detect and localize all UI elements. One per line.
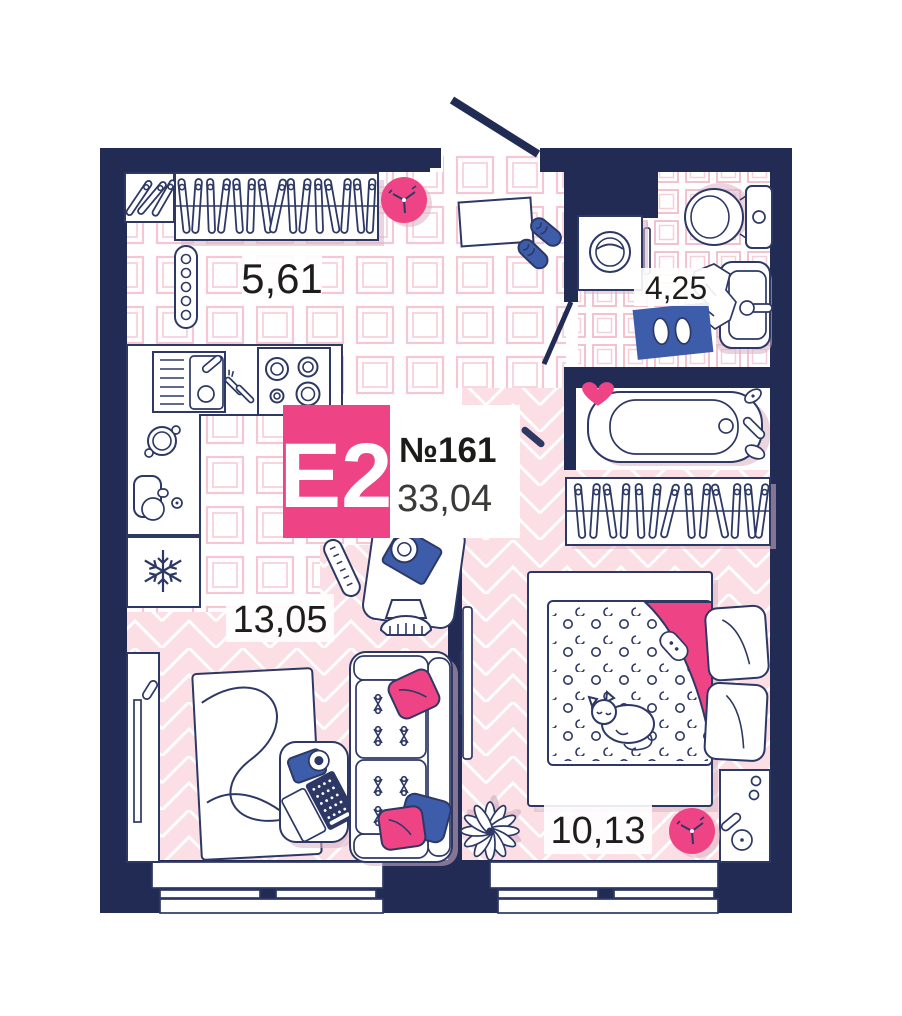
bed-pillow-icon (705, 605, 770, 681)
bathtub-icon (582, 382, 770, 466)
bedroom-window (490, 862, 718, 913)
pillow-icon (377, 805, 426, 851)
bedroom-wardrobe-icon (566, 478, 776, 549)
bathroom-area-label: 4,25 (645, 270, 707, 306)
bathroom-wall (564, 172, 578, 302)
unit-type-label: Е2 (280, 425, 393, 527)
unit-total-area-label: 33,04 (397, 478, 492, 520)
tv-console-icon (127, 653, 159, 862)
nightstand-icon (720, 770, 770, 862)
toilet-icon (685, 183, 772, 248)
radiator-icon (175, 246, 197, 328)
bathroom-niche-wall (578, 172, 658, 218)
tv-icon (134, 700, 141, 822)
washing-machine-icon (578, 216, 642, 290)
bed-pillow-icon (704, 682, 768, 761)
hallway-area-label: 5,61 (241, 255, 323, 302)
sofa-icon (350, 652, 458, 866)
entrance-door-swing-icon (452, 100, 538, 154)
bedroom-area-label: 10,13 (550, 810, 645, 852)
entrance-threshold-floor (443, 148, 538, 174)
doormat-icon (459, 198, 534, 247)
kitchen-sink-icon (153, 352, 225, 412)
bath-mat-icon (633, 302, 714, 360)
unit-number-label: №161 (399, 431, 496, 470)
floor-plan-drawing: 5,61 4,25 13,05 10,13 Е2 №161 33,04 (0, 0, 902, 1016)
stove-icon (258, 348, 330, 415)
unit-badge: Е2 №161 33,04 (280, 405, 520, 538)
coffee-table-icon (280, 742, 357, 848)
living-room-window (152, 862, 383, 913)
bedroom-tv-icon (461, 607, 472, 759)
living-area-label: 13,05 (232, 599, 327, 641)
floor-plan-card[interactable]: 5,61 4,25 13,05 10,13 Е2 №161 33,04 (0, 0, 902, 1016)
fridge-icon (127, 537, 200, 607)
